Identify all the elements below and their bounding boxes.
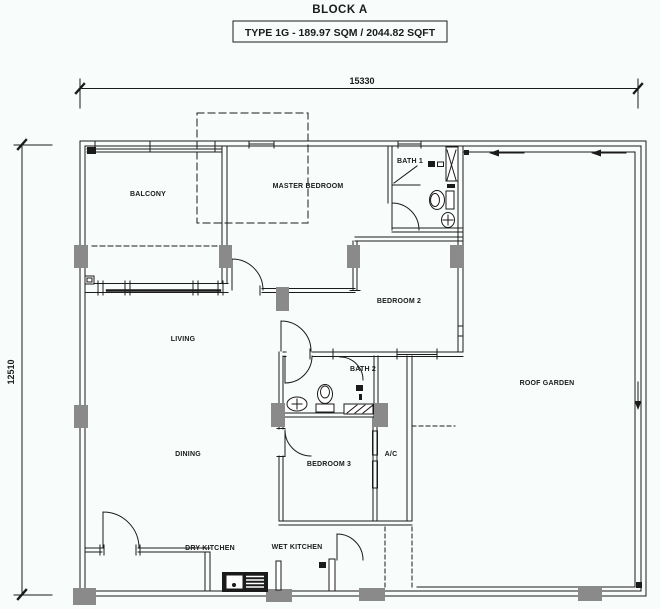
corner-column [87,147,96,154]
drain-outlet-icon [636,582,642,588]
room-label-bedroom-2: BEDROOM 2 [377,298,421,305]
room-labels: BALCONYMASTER BEDROOMBATH 1BEDROOM 2LIVI… [130,158,574,552]
column [276,287,289,311]
floor-plan-page: BLOCK A TYPE 1G - 189.97 SQM / 2044.82 S… [0,0,660,609]
room-label-dry-kitchen: DRY KITCHEN [185,545,235,552]
bath1-wall [388,146,392,203]
room-label-master-bedroom: MASTER BEDROOM [273,183,344,190]
room-label-bath-1: BATH 1 [397,158,423,165]
toilet-icon-bowl [431,194,440,207]
bedroom3-door-swing [285,430,311,456]
kitchen-faucet-icon [232,583,236,587]
ac-ledge-wall [407,356,412,521]
roof-garden-symbols [464,150,642,589]
interior-walls [85,141,463,591]
master-bedroom-wall [260,286,355,295]
column [74,405,88,428]
column [74,245,88,268]
plan-header: BLOCK A TYPE 1G - 189.97 SQM / 2044.82 S… [233,4,447,42]
room-label-wet-kitchen: WET KITCHEN [272,544,323,551]
room-label-ac-ledge: A/C [385,451,398,458]
room-label-living: LIVING [171,336,196,343]
bedroom3-west-wall [277,417,285,521]
bedroom2-walls [350,237,463,291]
floor-plan-drawing: BLOCK A TYPE 1G - 189.97 SQM / 2044.82 S… [0,0,660,609]
column [374,403,388,427]
drainage-arrow-icon-head [489,150,499,157]
switch-box-icon [319,562,326,568]
drainage-arrow-icon-head [635,401,642,410]
drain-outlet-icon [464,150,469,155]
toilet-icon-bowl [321,386,330,398]
master-bedroom-door-swing [232,259,263,290]
bedroom2-south-wall-window [333,349,463,359]
shower-drain-icon [356,385,363,391]
bedroom3-walls [279,417,412,525]
type-label: TYPE 1G - 189.97 SQM / 2044.82 SQFT [245,27,436,39]
top-wall-windows [249,141,421,148]
floor-trap-icon [428,161,435,167]
column [73,588,96,605]
overhead-dashed-outline [197,113,308,223]
room-label-balcony: BALCONY [130,191,166,198]
column [359,588,385,601]
corridor-door-swing [281,321,311,351]
bath1-door-swing [392,203,419,230]
column [347,245,360,268]
dimension-top: 15330 [76,76,642,108]
door-frame [329,559,335,591]
wet-kitchen-door-swing [337,534,363,560]
column [266,589,292,602]
room-label-bedroom-3: BEDROOM 3 [307,461,351,468]
dimension-left-value: 12510 [6,359,16,384]
room-label-bath-2: BATH 2 [350,366,376,373]
bath2-door-swing [285,356,312,383]
vent-icon [438,162,444,167]
entry-door-swing [103,512,139,548]
column [578,588,602,601]
block-title: BLOCK A [312,4,367,16]
hose-bib-icon-inner [87,278,92,282]
dimension-top-value: 15330 [349,76,374,86]
column [271,403,285,427]
living-window [85,281,228,295]
column [450,245,463,268]
toilet-icon-tank [316,404,334,412]
door-frame [276,561,281,590]
dimension-left: 12510 [6,140,52,599]
duct-icon [447,184,455,188]
drainage-arrow-icon-head [591,150,601,157]
column [219,245,232,268]
dimension-line [14,145,52,595]
shower-head-icon [359,394,362,400]
room-label-dining: DINING [175,451,201,458]
bath2-north-wall [283,349,335,359]
doors [103,203,419,560]
room-label-roof-garden: ROOF GARDEN [520,380,575,387]
toilet-icon-tank [446,191,454,209]
